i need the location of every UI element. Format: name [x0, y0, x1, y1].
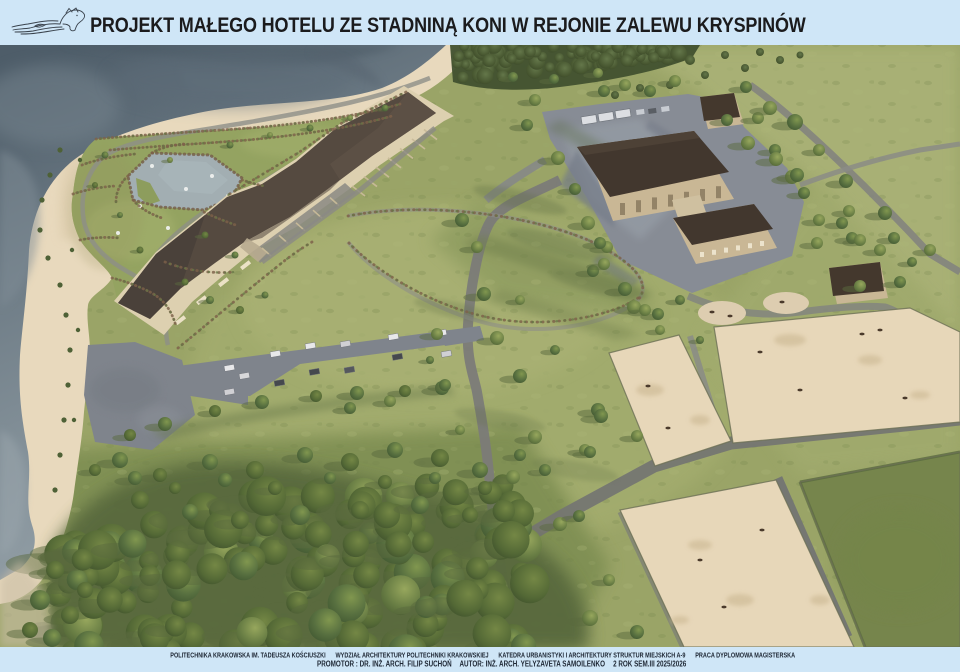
- svg-text:PROMOTOR : DR. INŻ. ARCH. FIL: PROMOTOR : DR. INŻ. ARCH. FILIP SUCHOŃ A…: [317, 659, 686, 669]
- svg-text:PROJEKT MAŁEGO HOTELU ZE STADN: PROJEKT MAŁEGO HOTELU ZE STADNINĄ KONI W…: [90, 11, 806, 37]
